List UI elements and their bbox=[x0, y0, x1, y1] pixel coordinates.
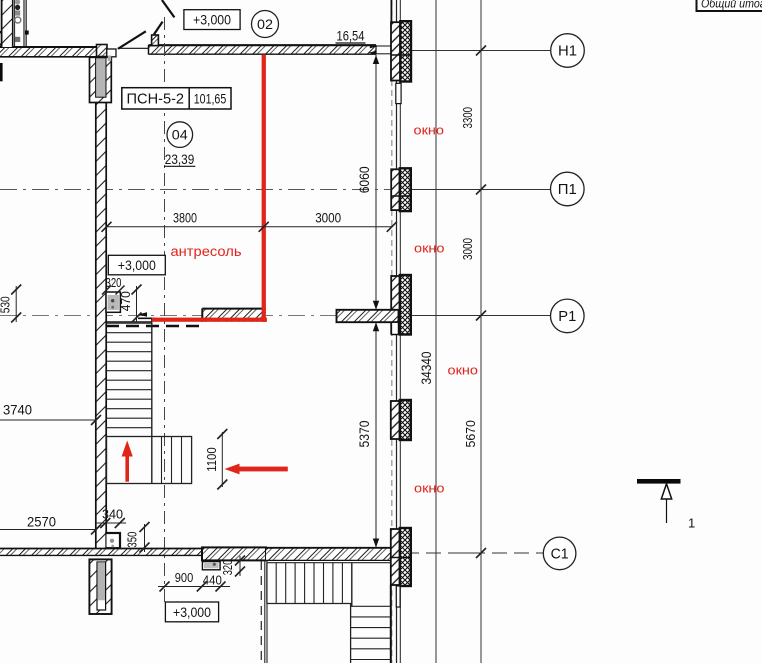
svg-text:3000: 3000 bbox=[460, 238, 475, 260]
svg-text:1: 1 bbox=[688, 516, 695, 531]
svg-text:5370: 5370 bbox=[357, 421, 372, 448]
svg-text:+3,000: +3,000 bbox=[118, 258, 156, 273]
svg-text:ПСН-5-2: ПСН-5-2 bbox=[127, 91, 185, 108]
svg-text:окно: окно bbox=[414, 242, 445, 256]
svg-text:окно: окно bbox=[414, 482, 445, 496]
svg-text:340: 340 bbox=[102, 506, 123, 521]
svg-text:Н1: Н1 bbox=[558, 44, 577, 60]
svg-text:3300: 3300 bbox=[460, 107, 475, 129]
svg-text:2570: 2570 bbox=[27, 513, 56, 529]
svg-text:С1: С1 bbox=[551, 546, 569, 562]
svg-text:440: 440 bbox=[203, 572, 222, 587]
svg-text:П1: П1 bbox=[558, 182, 577, 198]
svg-text:+3,000: +3,000 bbox=[173, 605, 211, 620]
svg-text:6060: 6060 bbox=[357, 166, 372, 193]
svg-text:окно: окно bbox=[414, 124, 445, 138]
svg-text:+3,000: +3,000 bbox=[193, 12, 231, 28]
svg-text:1100: 1100 bbox=[204, 447, 219, 472]
svg-text:02: 02 bbox=[257, 17, 273, 32]
svg-text:320: 320 bbox=[221, 560, 235, 576]
svg-text:16,54: 16,54 bbox=[337, 27, 365, 43]
svg-text:окно: окно bbox=[448, 364, 479, 378]
svg-text:23,39: 23,39 bbox=[165, 151, 195, 167]
svg-text:Р1: Р1 bbox=[558, 309, 576, 325]
svg-text:5670: 5670 bbox=[463, 420, 478, 448]
svg-text:470: 470 bbox=[118, 291, 133, 311]
svg-text:34340: 34340 bbox=[419, 352, 434, 385]
svg-text:350: 350 bbox=[126, 532, 140, 548]
svg-text:530: 530 bbox=[0, 296, 13, 313]
svg-text:900: 900 bbox=[175, 570, 194, 585]
svg-text:3000: 3000 bbox=[315, 210, 341, 225]
svg-text:3800: 3800 bbox=[173, 210, 197, 225]
svg-text:Общий итог: Общий итог bbox=[701, 0, 762, 11]
svg-text:антресоль: антресоль bbox=[171, 244, 242, 259]
svg-text:04: 04 bbox=[172, 127, 189, 142]
svg-text:101,65: 101,65 bbox=[194, 91, 227, 106]
svg-text:3740: 3740 bbox=[3, 402, 32, 418]
